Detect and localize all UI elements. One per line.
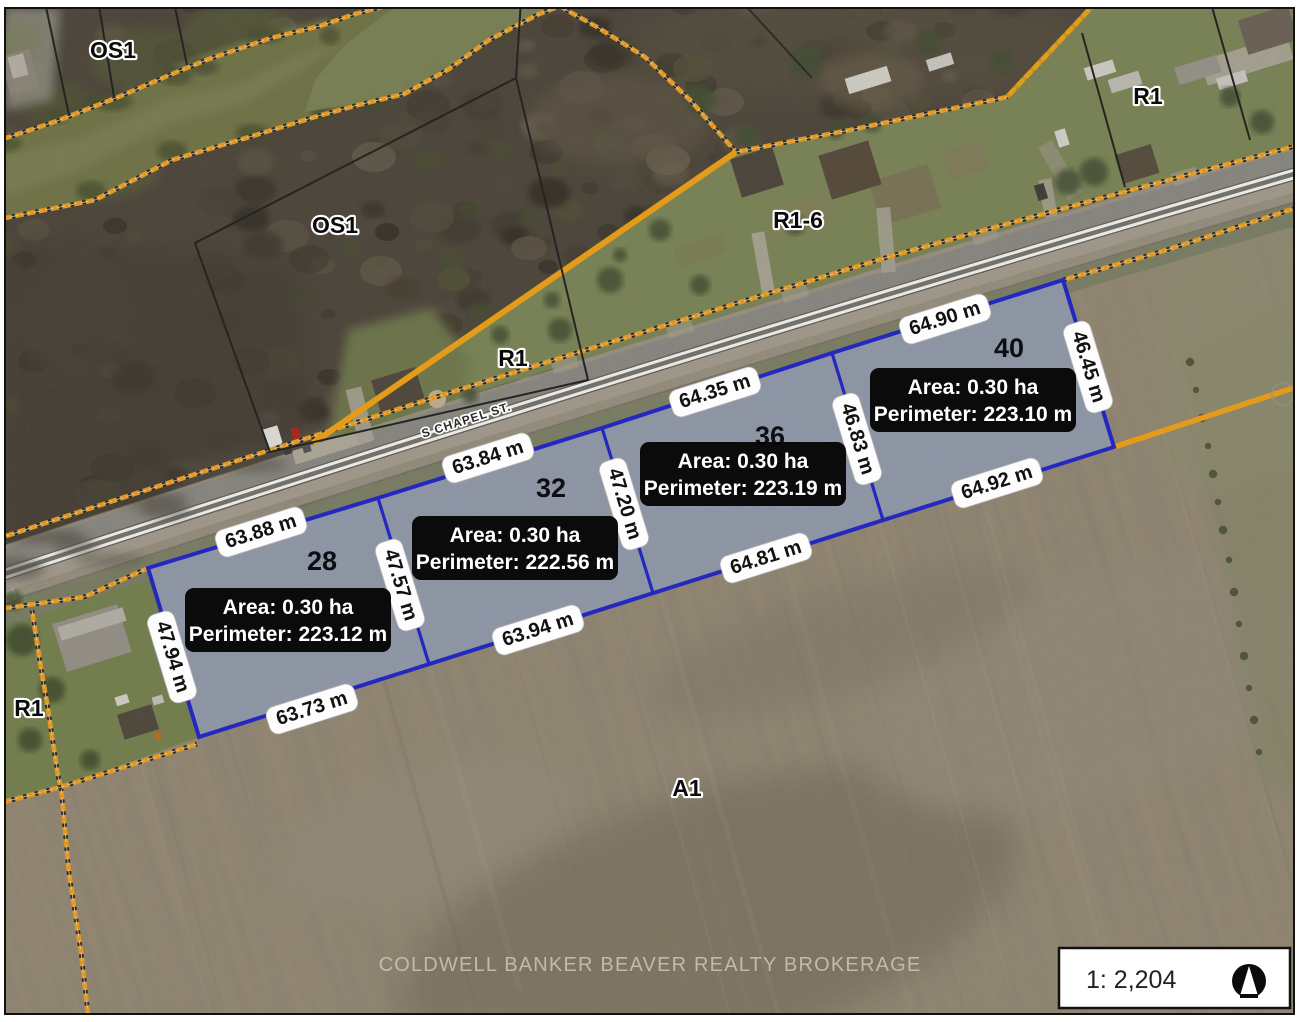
svg-text:Perimeter: 223.12 m: Perimeter: 223.12 m xyxy=(189,623,387,646)
svg-text:A1: A1 xyxy=(672,775,702,801)
svg-text:Area: 0.30 ha: Area: 0.30 ha xyxy=(223,596,354,619)
svg-text:COLDWELL BANKER BEAVER REALTY: COLDWELL BANKER BEAVER REALTY BROKERAGE xyxy=(379,954,922,976)
svg-text:32: 32 xyxy=(536,473,566,503)
svg-text:R1: R1 xyxy=(14,695,44,721)
svg-text:Perimeter: 223.19 m: Perimeter: 223.19 m xyxy=(644,477,842,500)
svg-text:Perimeter: 222.56 m: Perimeter: 222.56 m xyxy=(416,551,614,574)
svg-text:Perimeter: 223.10 m: Perimeter: 223.10 m xyxy=(874,403,1072,426)
svg-text:Area: 0.30 ha: Area: 0.30 ha xyxy=(678,450,809,473)
svg-text:Area: 0.30 ha: Area: 0.30 ha xyxy=(908,376,1039,399)
svg-text:28: 28 xyxy=(307,546,337,576)
svg-text:1: 2,204: 1: 2,204 xyxy=(1086,966,1176,994)
svg-text:40: 40 xyxy=(994,333,1024,363)
svg-text:Area: 0.30 ha: Area: 0.30 ha xyxy=(450,524,581,547)
svg-text:R1-6: R1-6 xyxy=(773,207,823,233)
svg-text:R1: R1 xyxy=(498,345,528,371)
svg-text:R1: R1 xyxy=(1133,83,1163,109)
svg-text:OS1: OS1 xyxy=(90,37,136,63)
svg-text:OS1: OS1 xyxy=(312,212,358,238)
